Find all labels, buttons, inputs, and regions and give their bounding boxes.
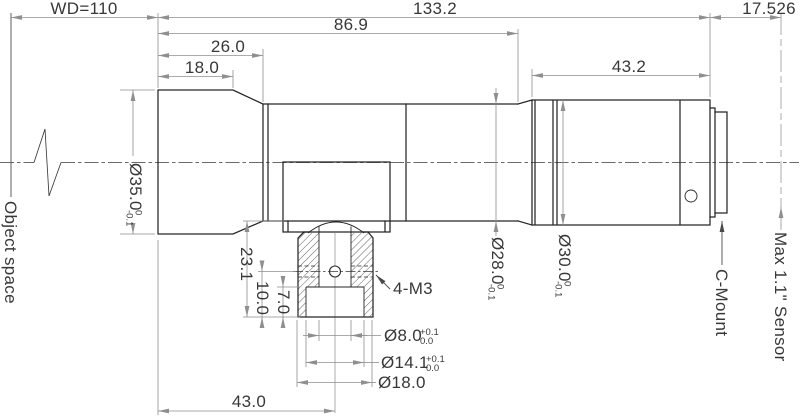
dia-cbore-tol-lower: 0.0 [426,363,439,374]
dim-text-flange-focal: 17.526 [742,0,796,18]
dim-text-43-2: 43.2 [612,57,646,76]
dia-rear-label: Ø30.0 0 -0.1 [553,234,575,297]
dia-cbore-value: Ø14.1 [381,353,429,372]
svg-text:C-Mount: C-Mount [712,269,731,336]
dia-front-tol-lower: -0.1 [124,210,135,226]
c-mount-label: C-Mount [712,269,731,336]
dia-slot-tol-lower: 0.0 [420,336,433,347]
dim-23-1-label: 23.1 [237,247,256,281]
dia-cbore-label: Ø14.1 +0.1 0.0 [381,353,445,374]
dia-tube-label: Ø28.0 0 -0.1 [486,237,508,300]
dim-text-26: 26.0 [211,37,245,56]
screw-callout-leader [376,275,390,289]
break-symbol [34,129,61,196]
dia-front-label: Ø35.0 0 -0.1 [124,163,146,226]
svg-text:Object space: Object space [1,201,20,304]
lens-body [158,90,727,234]
dia-tube-tol-lower: -0.1 [486,284,497,300]
object-space-label: Object space [1,201,20,304]
drawing-canvas: WD=110 133.2 17.526 86.9 26.0 18.0 43.2 … [0,0,801,418]
dia-slot-label: Ø8.0 +0.1 0.0 [384,326,439,347]
svg-text:Max 1.1" Sensor: Max 1.1" Sensor [771,232,790,362]
dia-boss-label: Ø18.0 [378,373,426,392]
dim-text-7-0: 7.0 [274,290,293,315]
dimension-texts: WD=110 133.2 17.526 86.9 26.0 18.0 43.2 … [50,0,795,411]
clamp-screw-hole [685,190,697,202]
optical-axis-centerline [0,129,799,196]
clamp-block [283,162,390,221]
dim-text-43-0: 43.0 [232,392,266,411]
lens-mechanical-drawing: WD=110 133.2 17.526 86.9 26.0 18.0 43.2 … [0,0,801,418]
dim-text-86-9: 86.9 [334,15,368,34]
dia-rear-value: Ø30.0 [555,234,574,282]
screw-callout-label: 4-M3 [393,279,433,298]
dim-7-0-label: 7.0 [274,290,293,315]
dia-front-value: Ø35.0 [126,163,145,211]
dia-tube-value: Ø28.0 [488,237,507,285]
dim-text-wd: WD=110 [50,0,117,18]
dim-text-23-1: 23.1 [237,247,256,281]
dia-slot-value: Ø8.0 [384,326,422,345]
dim-text-overall: 133.2 [413,0,457,18]
dim-text-18: 18.0 [185,58,219,77]
dim-text-10-0: 10.0 [253,281,272,315]
front-barrel [158,90,263,234]
sensor-label: Max 1.1" Sensor [771,232,790,362]
dia-rear-tol-lower: -0.1 [553,281,564,297]
dim-10-0-label: 10.0 [253,281,272,315]
